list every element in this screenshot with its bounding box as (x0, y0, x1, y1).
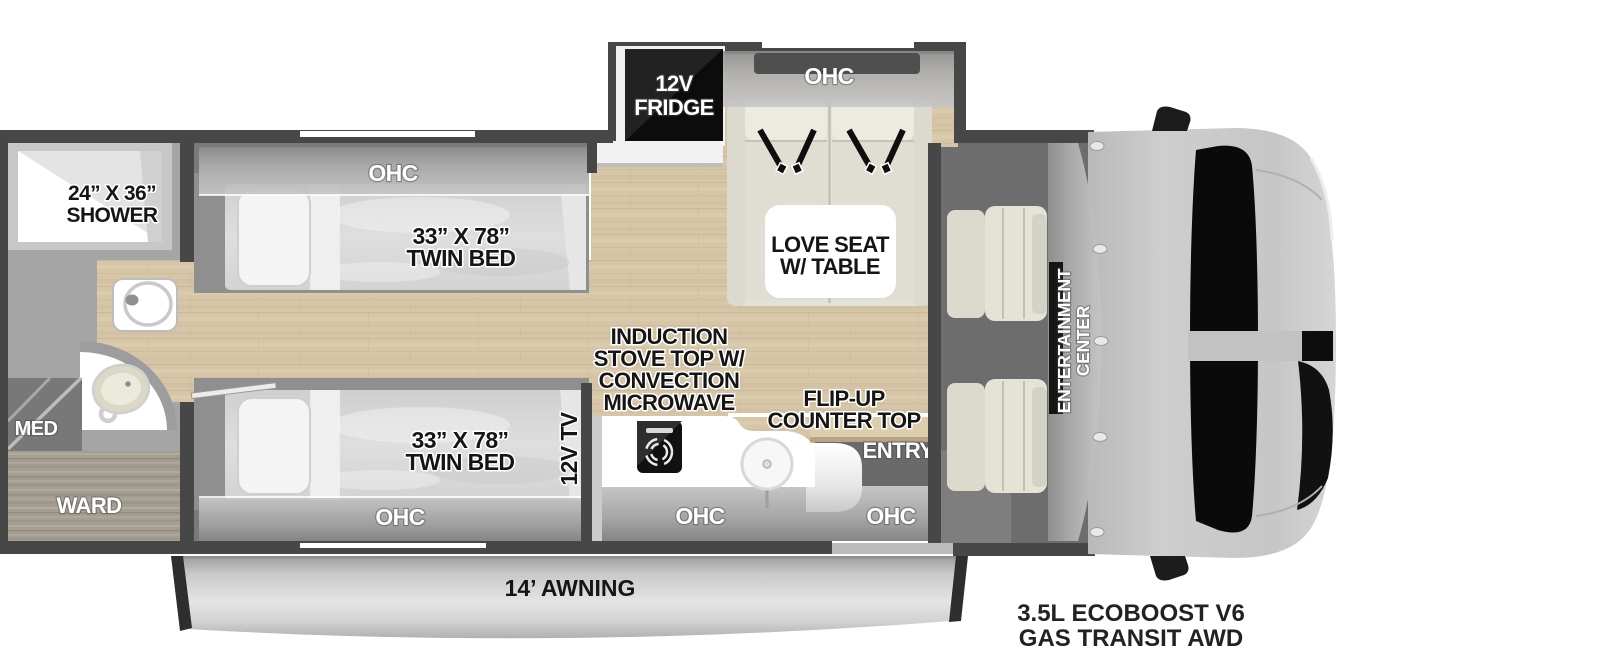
svg-text:MED: MED (15, 418, 58, 440)
svg-text:3.5L ECOBOOST V6: 3.5L ECOBOOST V6 (1017, 600, 1245, 627)
svg-text:TWIN BED: TWIN BED (406, 449, 515, 475)
svg-text:WARD: WARD (57, 493, 122, 518)
svg-text:ENTERTAINMENT: ENTERTAINMENT (1054, 268, 1074, 413)
svg-text:OHC: OHC (375, 504, 424, 530)
svg-text:OHC: OHC (368, 160, 417, 186)
svg-text:SHOWER: SHOWER (67, 204, 158, 227)
svg-text:W/ TABLE: W/ TABLE (780, 254, 880, 279)
svg-text:GAS TRANSIT AWD: GAS TRANSIT AWD (1019, 625, 1243, 651)
svg-text:COUNTER TOP: COUNTER TOP (767, 408, 920, 433)
svg-text:24” X 36”: 24” X 36” (68, 182, 156, 205)
svg-text:CENTER: CENTER (1073, 305, 1093, 376)
svg-text:OHC: OHC (675, 503, 724, 529)
svg-text:OHC: OHC (866, 503, 915, 529)
svg-text:OHC: OHC (804, 63, 853, 89)
svg-text:MICROWAVE: MICROWAVE (603, 390, 734, 415)
svg-text:FRIDGE: FRIDGE (634, 95, 714, 120)
svg-text:14’ AWNING: 14’ AWNING (505, 575, 636, 601)
svg-text:12V TV: 12V TV (556, 411, 582, 485)
svg-text:ENTRY: ENTRY (863, 438, 935, 463)
svg-text:12V: 12V (655, 71, 693, 96)
svg-text:TWIN BED: TWIN BED (407, 245, 516, 271)
